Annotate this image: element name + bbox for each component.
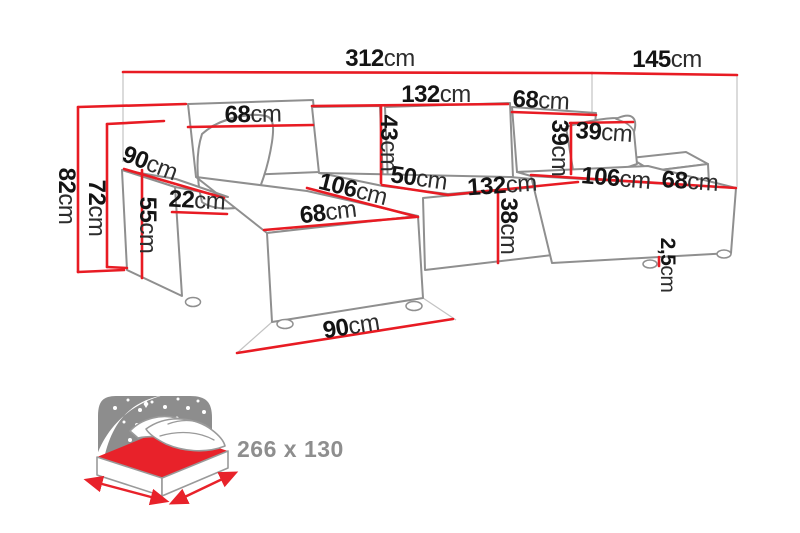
dim-tick (78, 104, 186, 107)
dim-line-total-depth (592, 73, 737, 75)
dim-seat-width: 132cm (466, 169, 537, 201)
dim-backrest-right-width: 68cm (512, 85, 570, 115)
dim-seat-height: 38cm (496, 198, 523, 255)
right-chaise-leg (717, 250, 731, 258)
dim-tick (107, 121, 164, 124)
dim-frame-height: 72cm (84, 180, 111, 237)
left-chaise-leg (277, 320, 293, 329)
dim-pillow-right-height: 39cm (547, 120, 574, 177)
dim-total-height: 82cm (54, 168, 81, 225)
sleeping-area-size-label: 266 x 130 (237, 436, 344, 462)
sleeping-function-icon: 266 x 130 (87, 395, 344, 503)
dim-total-width: 312cm (345, 45, 415, 72)
dim-armrest-height: 55cm (135, 197, 162, 254)
dim-armrest-width: 22cm (168, 185, 226, 215)
dim-pillow-right-width: 39cm (575, 117, 633, 148)
dim-backrest-mid-width: 132cm (401, 81, 471, 108)
sofa-dimension-diagram: 312cm 145cm 68cm 132cm 68cm 43cm 39cm 39… (0, 0, 800, 533)
dim-chaise-right-width: 68cm (661, 166, 719, 197)
left-chaise-leg (406, 302, 422, 311)
dim-tick (78, 270, 124, 272)
dim-tick (107, 267, 127, 268)
dim-backrest-left-width: 68cm (224, 100, 281, 128)
right-chaise-leg (643, 260, 657, 268)
dim-total-depth: 145cm (632, 46, 702, 73)
left-chaise-front (267, 216, 423, 322)
dim-line-total-width (123, 72, 592, 73)
left-armrest-leg (186, 298, 201, 307)
dim-leg-height: 2,5cm (657, 238, 680, 293)
